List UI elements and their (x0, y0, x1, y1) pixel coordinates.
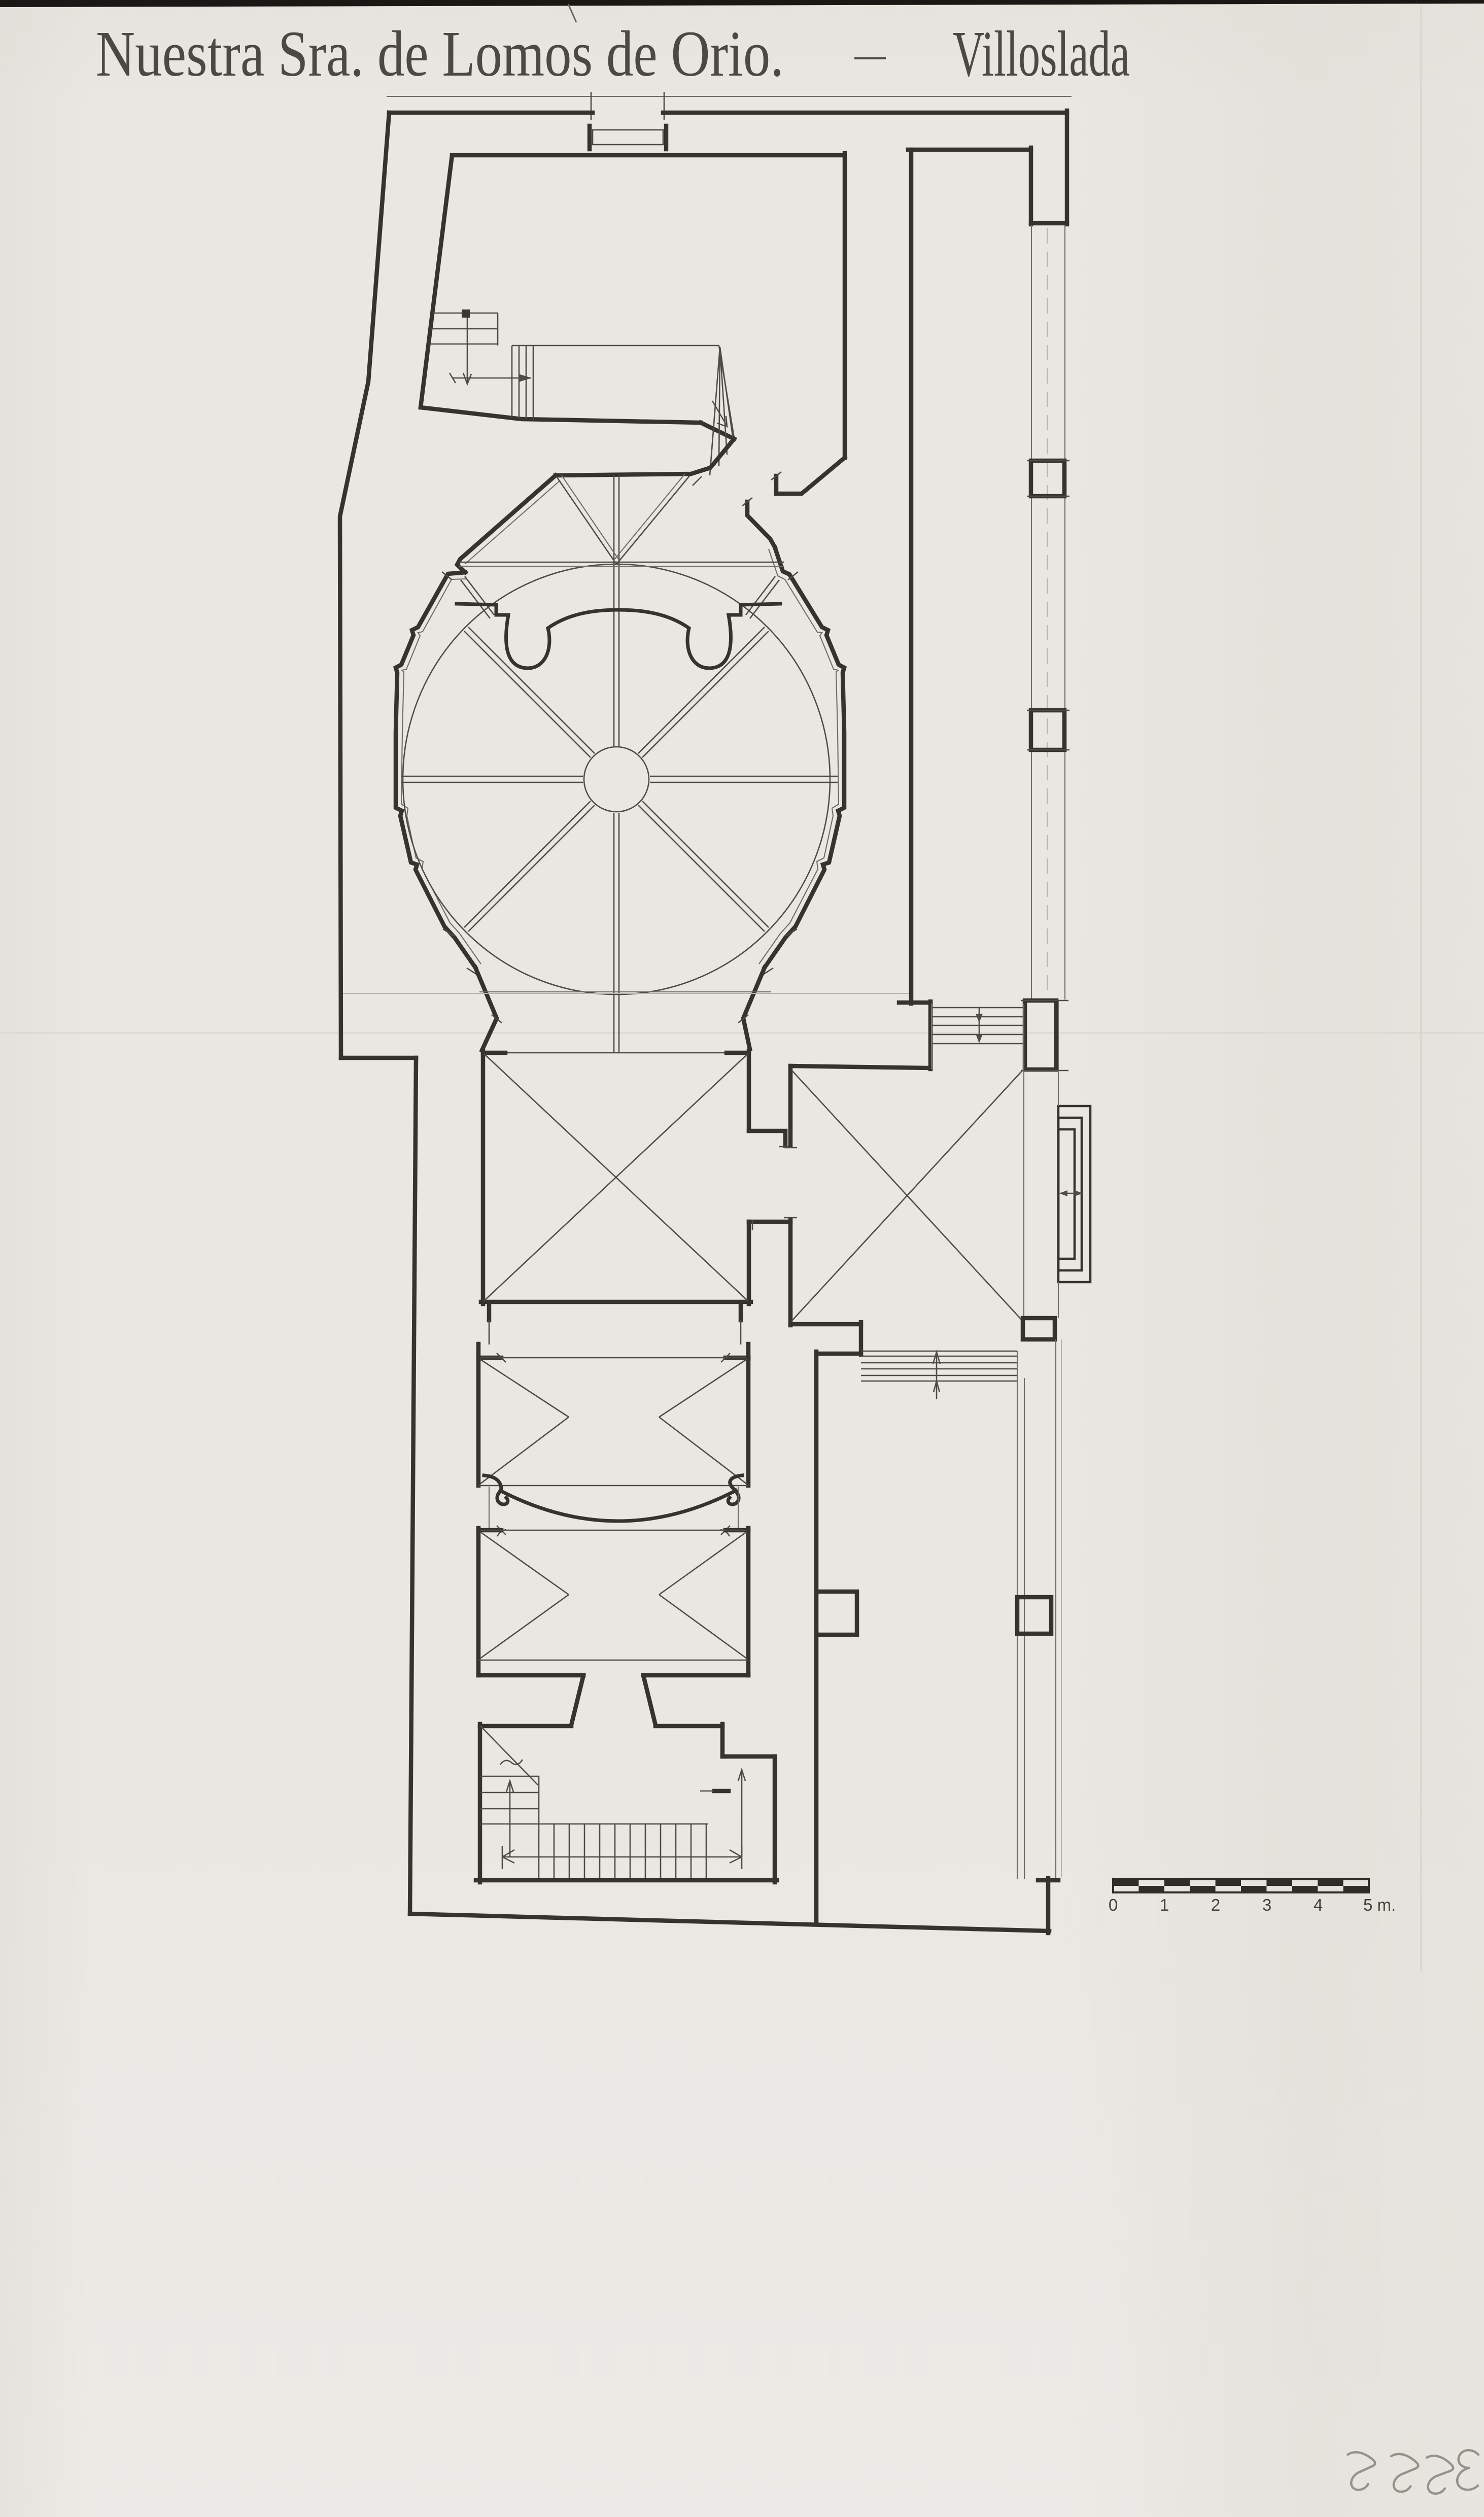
svg-text:4: 4 (1314, 1895, 1323, 1914)
svg-text:5 m.: 5 m. (1363, 1895, 1396, 1914)
svg-text:0: 0 (1109, 1895, 1118, 1914)
svg-text:2: 2 (1211, 1895, 1220, 1914)
svg-text:1: 1 (1160, 1895, 1169, 1914)
svg-text:3: 3 (1262, 1895, 1271, 1914)
